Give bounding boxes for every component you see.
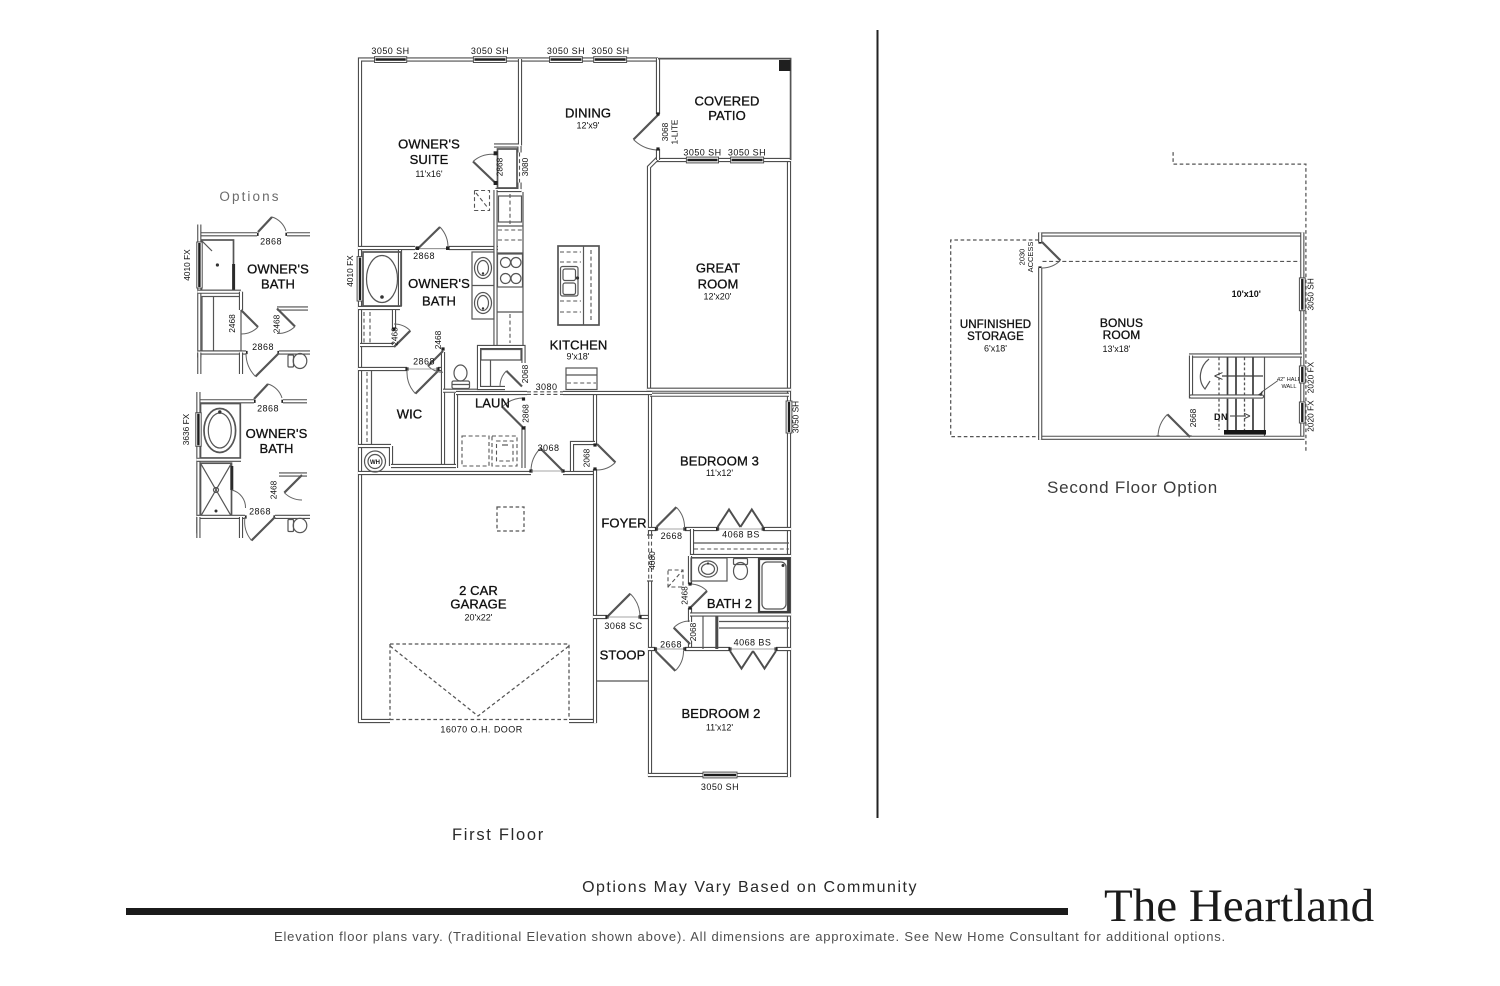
svg-text:4080: 4080 [647, 551, 657, 570]
svg-text:2468: 2468 [390, 327, 400, 346]
svg-text:ROOM: ROOM [1103, 328, 1141, 342]
svg-text:3080: 3080 [536, 382, 558, 392]
svg-text:2468: 2468 [269, 480, 279, 499]
svg-text:KITCHEN: KITCHEN [550, 338, 608, 353]
svg-text:3050 SH: 3050 SH [471, 46, 509, 56]
svg-text:OWNER'S: OWNER'S [247, 262, 309, 277]
svg-text:WIC: WIC [397, 407, 423, 422]
svg-text:2868: 2868 [413, 357, 435, 367]
svg-text:ROOM: ROOM [698, 277, 739, 292]
svg-text:2868: 2868 [252, 342, 274, 352]
svg-text:STORAGE: STORAGE [967, 331, 1024, 343]
svg-text:2068: 2068 [520, 364, 530, 383]
svg-text:3050 SH: 3050 SH [591, 46, 629, 56]
svg-text:3050 SH: 3050 SH [371, 46, 409, 56]
svg-text:BATH: BATH [261, 277, 295, 292]
svg-text:2868: 2868 [413, 251, 435, 261]
svg-text:OWNER'S: OWNER'S [398, 137, 460, 152]
svg-text:3050 SH: 3050 SH [701, 782, 739, 792]
svg-text:2868: 2868 [495, 157, 505, 176]
svg-text:BEDROOM 2: BEDROOM 2 [682, 706, 761, 721]
svg-text:2020 FX: 2020 FX [1306, 400, 1316, 432]
svg-text:1-LITE: 1-LITE [670, 119, 680, 144]
svg-text:4010 FX: 4010 FX [345, 255, 355, 287]
svg-text:BEDROOM 3: BEDROOM 3 [680, 454, 759, 469]
svg-text:2868: 2868 [249, 507, 271, 517]
svg-text:3050 SH: 3050 SH [1306, 278, 1316, 310]
svg-text:2868: 2868 [257, 404, 279, 414]
svg-text:STOOP: STOOP [600, 648, 646, 663]
svg-text:11'x16': 11'x16' [415, 169, 443, 179]
svg-text:2468: 2468 [433, 330, 443, 349]
svg-text:3068 SC: 3068 SC [604, 621, 642, 631]
svg-text:2468: 2468 [680, 586, 690, 605]
svg-text:3636 FX: 3636 FX [181, 413, 191, 445]
svg-text:FOYER: FOYER [601, 516, 646, 531]
svg-text:16070 O.H. DOOR: 16070 O.H. DOOR [440, 725, 522, 735]
svg-text:12'x20': 12'x20' [704, 292, 732, 302]
svg-text:12'x9': 12'x9' [577, 121, 600, 131]
svg-text:2068: 2068 [688, 622, 698, 641]
svg-text:11'x12': 11'x12' [706, 723, 734, 733]
svg-text:2868: 2868 [521, 404, 531, 423]
svg-text:OWNER'S: OWNER'S [246, 426, 308, 441]
svg-text:4010 FX: 4010 FX [182, 249, 192, 281]
svg-text:WH: WH [370, 460, 380, 466]
svg-text:Elevation floor plans vary. (T: Elevation floor plans vary. (Traditional… [274, 929, 1226, 944]
svg-text:4068 BS: 4068 BS [734, 638, 772, 648]
svg-text:9'x18': 9'x18' [567, 352, 590, 362]
svg-text:DINING: DINING [565, 106, 611, 121]
svg-text:2020 FX: 2020 FX [1306, 361, 1316, 393]
svg-text:COVERED: COVERED [695, 94, 760, 109]
svg-text:ACCESS: ACCESS [1026, 242, 1035, 273]
svg-text:6'x18': 6'x18' [984, 344, 1007, 354]
svg-text:SUITE: SUITE [410, 152, 449, 167]
svg-text:2868: 2868 [260, 237, 282, 247]
svg-text:13'x18': 13'x18' [1103, 344, 1131, 354]
svg-text:20'x22': 20'x22' [465, 613, 493, 623]
svg-text:3050 SH: 3050 SH [547, 46, 585, 56]
svg-text:2468: 2468 [272, 314, 282, 333]
svg-text:11'x12': 11'x12' [706, 468, 734, 478]
svg-text:GREAT: GREAT [696, 261, 740, 276]
svg-text:Second Floor Option: Second Floor Option [1047, 478, 1218, 497]
svg-text:DN: DN [1214, 412, 1228, 422]
svg-text:OWNER'S: OWNER'S [408, 276, 470, 291]
svg-text:3050 SH: 3050 SH [791, 401, 801, 433]
svg-text:2468: 2468 [227, 314, 237, 333]
svg-text:2668: 2668 [1188, 408, 1198, 427]
svg-text:2668: 2668 [661, 531, 683, 541]
svg-text:UNFINISHED: UNFINISHED [960, 319, 1031, 331]
svg-text:3068: 3068 [538, 443, 560, 453]
svg-text:The Heartland: The Heartland [1104, 880, 1374, 932]
svg-text:First Floor: First Floor [452, 826, 545, 844]
svg-text:Options: Options [219, 189, 280, 204]
svg-text:3080: 3080 [520, 157, 530, 176]
svg-text:Options May Vary Based on Comm: Options May Vary Based on Community [582, 879, 918, 896]
svg-text:BATH: BATH [259, 441, 293, 456]
svg-text:3050 SH: 3050 SH [728, 148, 766, 158]
svg-text:10'x10': 10'x10' [1232, 289, 1261, 299]
svg-text:4068 BS: 4068 BS [722, 530, 760, 540]
svg-text:3068: 3068 [660, 122, 670, 141]
svg-text:BATH: BATH [422, 294, 456, 309]
svg-text:LAUN: LAUN [475, 396, 510, 411]
svg-text:2068: 2068 [582, 448, 592, 467]
svg-text:GARAGE: GARAGE [450, 597, 506, 612]
svg-text:3050 SH: 3050 SH [683, 148, 721, 158]
svg-text:PATIO: PATIO [708, 108, 746, 123]
svg-text:2668: 2668 [660, 640, 682, 650]
svg-text:42" HALF: 42" HALF [1277, 377, 1302, 383]
svg-text:BATH 2: BATH 2 [707, 596, 752, 611]
svg-text:WALL: WALL [1281, 384, 1296, 390]
